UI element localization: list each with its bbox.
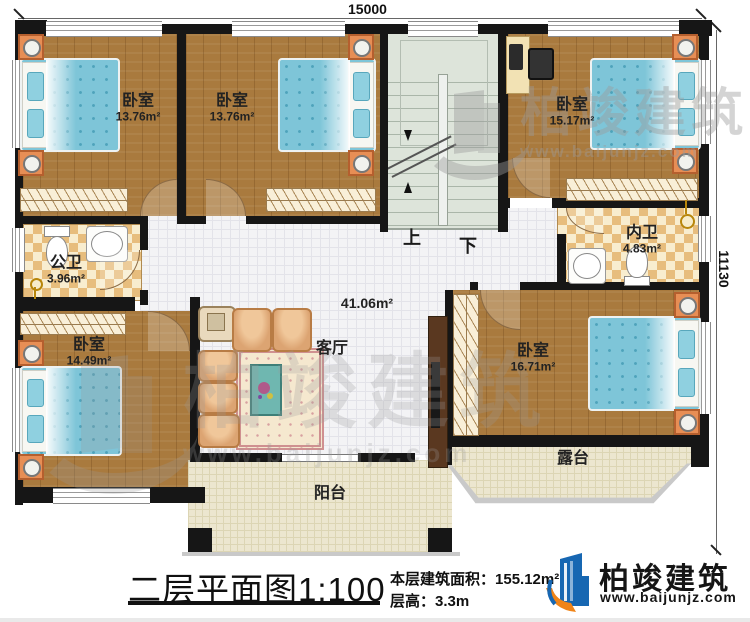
balcony-pillar: [188, 528, 212, 552]
balcony-sliding-door: [282, 454, 358, 462]
wardrobe: [20, 188, 128, 212]
floor-drain-icon: [34, 287, 36, 299]
shower-head-icon: [680, 214, 695, 229]
room-label-living: 客厅: [316, 340, 348, 358]
sofa: [198, 350, 238, 382]
wall: [177, 24, 186, 224]
room-label-bedroom-tr: 卧室 15.17m²: [550, 96, 595, 127]
nightstand: [18, 454, 44, 480]
wall: [140, 216, 148, 250]
shower-head-icon: [685, 200, 687, 214]
tv-icon: [528, 48, 554, 80]
bed: [278, 58, 376, 152]
window: [548, 21, 679, 37]
window: [53, 488, 150, 504]
room-label-bedroom-tl: 卧室 13.76m²: [116, 92, 161, 123]
window: [408, 21, 478, 37]
nightstand: [348, 34, 374, 60]
nightstand: [672, 34, 698, 60]
title-underline: [128, 601, 380, 605]
wall: [470, 282, 478, 290]
room-label-bedroom-br: 卧室 16.71m²: [511, 342, 556, 373]
balcony-floor: [188, 460, 452, 552]
bed: [20, 58, 120, 152]
wall: [358, 453, 415, 462]
wall: [186, 216, 206, 224]
floor-area-stat: 本层建筑面积：155.12m²: [390, 568, 559, 589]
side-table: [207, 313, 225, 331]
window: [232, 21, 345, 37]
wardrobe: [20, 313, 126, 335]
room-label-public-bath: 公卫 3.96m²: [47, 254, 85, 285]
wall: [15, 297, 135, 311]
tv-icon: [431, 362, 440, 428]
floor-height-stat: 层高：3.3m: [390, 590, 469, 611]
room-label-ensuite-bath: 内卫 4.83m²: [623, 224, 661, 255]
dimension-right-value: 11130: [716, 239, 732, 299]
dimension-top-value: 15000: [348, 1, 387, 17]
flower-decor: [258, 382, 270, 394]
wall: [520, 282, 557, 290]
wall: [557, 234, 566, 284]
wall: [196, 453, 282, 462]
dimension-line-top: [18, 18, 702, 19]
floor-drain-icon: [30, 278, 43, 291]
room-label-bedroom-tm: 卧室 13.76m²: [210, 92, 255, 123]
nightstand: [672, 148, 698, 174]
room-label-terrace: 露台: [557, 450, 589, 468]
stair-direction-arrow: [404, 130, 412, 141]
window: [698, 216, 711, 262]
room-label-balcony: 阳台: [314, 485, 346, 503]
bed: [588, 316, 701, 411]
wall: [445, 435, 709, 447]
sofa: [198, 414, 240, 448]
wall: [140, 290, 148, 305]
wall: [380, 24, 388, 232]
wall: [498, 198, 510, 208]
nightstand: [18, 34, 44, 60]
tv-icon: [509, 44, 523, 70]
window: [46, 21, 162, 37]
wardrobe: [453, 294, 479, 436]
nightstand: [18, 340, 44, 366]
nightstand: [348, 150, 374, 176]
balcony-rail: [182, 552, 460, 556]
bed: [590, 58, 701, 150]
sink-icon: [568, 248, 606, 284]
wall: [15, 216, 143, 224]
sofa: [272, 308, 312, 352]
nightstand: [674, 292, 700, 318]
room-label-bedroom-bl: 卧室 14.49m²: [67, 336, 112, 367]
nightstand: [674, 409, 700, 435]
sofa: [198, 382, 238, 414]
balcony-pillar: [428, 528, 452, 552]
stair-direction-arrow: [404, 182, 412, 193]
window: [12, 228, 25, 272]
page-edge: [0, 618, 750, 622]
sofa: [232, 308, 272, 352]
floor-plan-page: 15000 11130: [0, 0, 750, 622]
brand-url: www.baijunjz.com: [600, 589, 737, 605]
nightstand: [18, 150, 44, 176]
stair-down-label: 下: [459, 232, 477, 258]
wardrobe: [266, 188, 376, 212]
living-area-value: 41.06m²: [341, 296, 393, 312]
wardrobe: [566, 178, 698, 201]
wall: [246, 216, 380, 224]
bed: [20, 366, 122, 456]
brand-logo-icon: [543, 552, 595, 614]
stair-up-label: 上: [403, 224, 421, 250]
